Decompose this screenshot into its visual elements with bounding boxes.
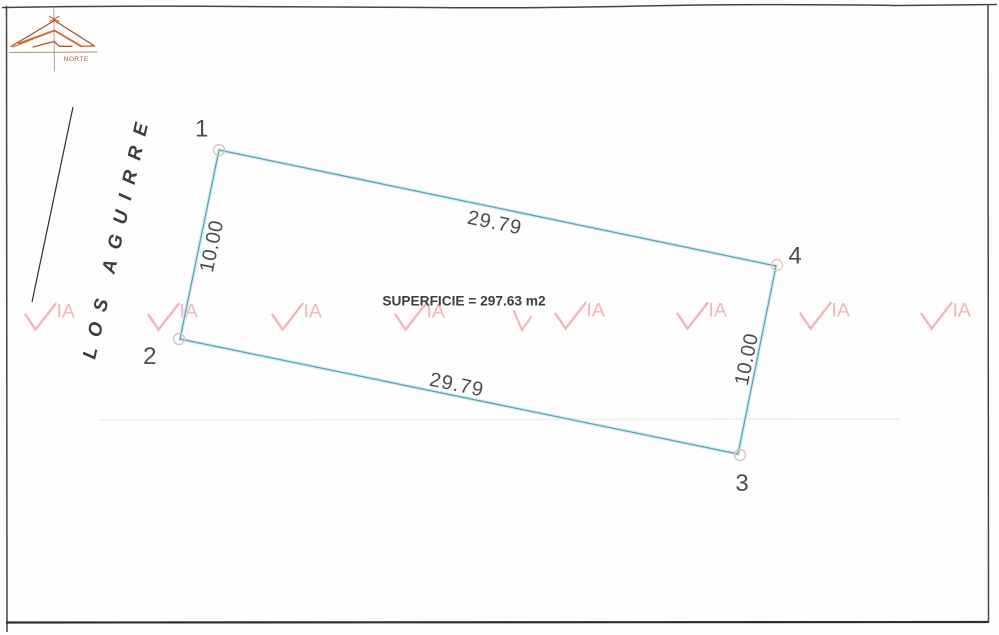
svg-text:NORTE: NORTE xyxy=(64,56,89,63)
svg-text:4: 4 xyxy=(788,243,801,270)
svg-text:2: 2 xyxy=(143,343,156,370)
svg-text:1: 1 xyxy=(195,116,208,143)
svg-text:3: 3 xyxy=(735,470,748,497)
svg-text:SUPERFICIE = 297.63 m2: SUPERFICIE = 297.63 m2 xyxy=(382,294,546,309)
